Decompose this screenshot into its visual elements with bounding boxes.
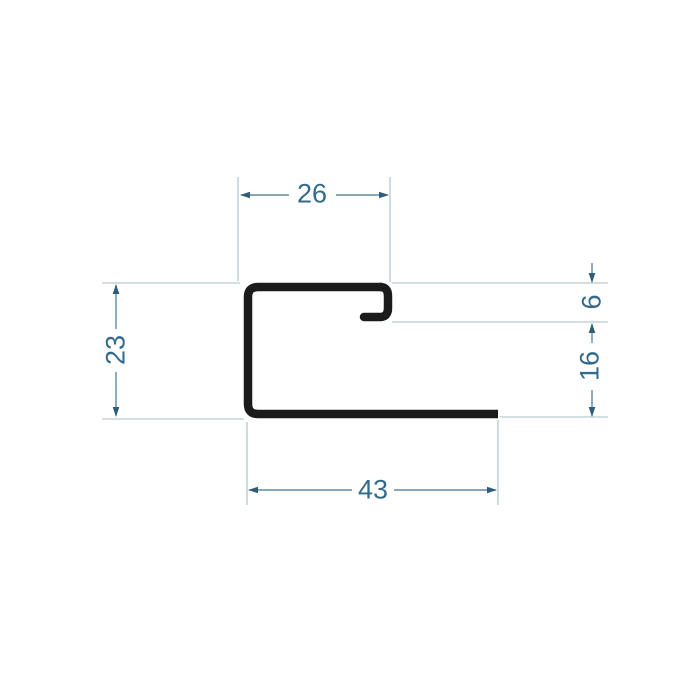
arrow-down-icon [589,273,596,283]
dim-label-top-width: 26 [294,181,330,208]
dim-label-bottom-width: 43 [355,477,391,504]
extension-lines [102,177,608,505]
arrow-right-icon [487,487,497,494]
arrow-down-icon [589,407,596,417]
dimension-lines [116,195,592,490]
arrow-up-icon [113,284,120,294]
dim-label-right-lower-height: 16 [577,348,604,384]
profile-outline [248,287,498,414]
arrow-left-icon [240,192,250,199]
profile-body-path [248,287,498,414]
dim-label-hook-height: 6 [579,291,606,312]
arrowheads [113,192,596,494]
dim-label-left-height: 23 [103,332,130,368]
profile-hook-path [364,287,388,317]
arrow-right-icon [379,192,389,199]
arrow-left-icon [248,487,258,494]
drawing-canvas: 26 23 6 16 43 [0,0,700,700]
arrow-down-icon [113,407,120,417]
arrow-up-icon [589,323,596,333]
